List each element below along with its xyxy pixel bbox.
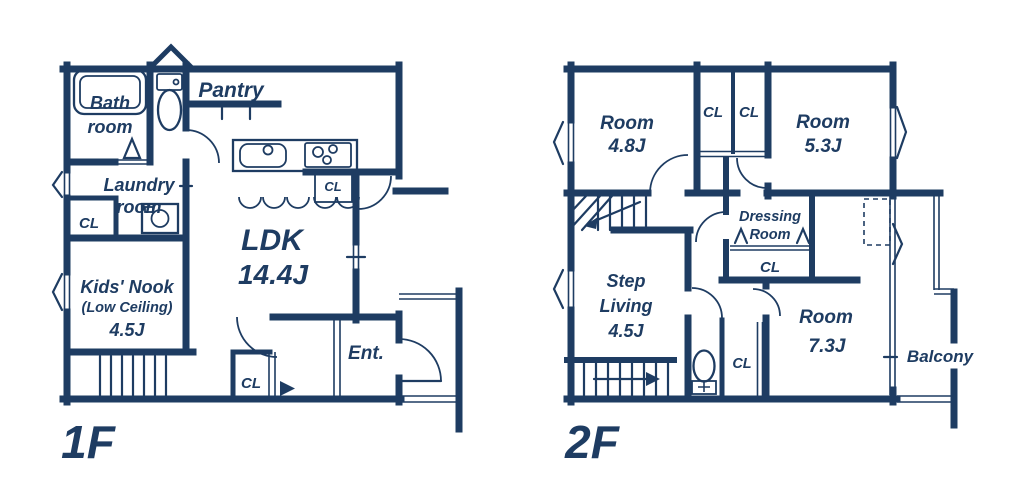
closet-sliding-doors <box>758 322 763 396</box>
stairs-direction-arrow-icon <box>646 372 660 386</box>
stove-icon <box>305 143 351 167</box>
closet-rod <box>730 246 810 250</box>
label-entrance: Ent. <box>348 343 384 364</box>
toilet-icon <box>157 74 182 130</box>
label-cl-b: CL <box>739 104 759 121</box>
stairs-2f-icon <box>571 196 646 230</box>
floor-1-labels: Bath room Pantry Laundry room CL CL LDK … <box>61 79 384 468</box>
label-ldk-name: LDK <box>241 224 305 257</box>
label-kids-nook-line1: Kids' Nook <box>80 277 174 297</box>
label-kids-nook-line3: 4.5J <box>108 320 145 340</box>
step-living-steps-icon <box>584 363 668 396</box>
label-kids-nook-line2: (Low Ceiling) <box>81 300 172 316</box>
label-dressing-line2: Room <box>749 227 790 243</box>
door-arc <box>753 289 780 316</box>
door-arc <box>399 339 441 381</box>
door-pivot-icon <box>280 381 295 396</box>
label-room53-name: Room <box>796 112 850 133</box>
hall-closet <box>269 320 340 399</box>
door-arc <box>186 130 219 163</box>
floorplan-canvas: Bath room Pantry Laundry room CL CL LDK … <box>0 0 1024 488</box>
label-step-living-line2: Living <box>600 296 653 316</box>
hanger-icon <box>735 229 747 243</box>
door-arc <box>358 176 391 209</box>
label-laundry-cl: CL <box>79 215 99 232</box>
stairs-1f-icon <box>100 356 166 396</box>
floor-1-title: 1F <box>61 416 117 468</box>
door-arc <box>650 155 688 193</box>
label-room48-size: 4.8J <box>608 136 646 157</box>
toilet-icon-2f <box>692 351 716 395</box>
label-room53-size: 5.3J <box>805 136 842 157</box>
label-step-living-line1: Step <box>606 271 645 291</box>
label-laundry-line2: room <box>117 197 162 217</box>
counter-dashed-icon <box>864 199 890 245</box>
label-room73-size: 7.3J <box>809 336 846 357</box>
label-ldk-size: 14.4J <box>238 259 309 290</box>
floor-1-plan: Bath room Pantry Laundry room CL CL LDK … <box>53 47 459 468</box>
label-pantry: Pantry <box>198 79 265 102</box>
label-wc-cl: CL <box>732 356 751 372</box>
floorplan-page: Bath room Pantry Laundry room CL CL LDK … <box>0 0 1024 488</box>
door-arc <box>696 212 726 242</box>
label-bathroom-line2: room <box>88 117 133 137</box>
label-room73-name: Room <box>799 307 853 328</box>
door-arc <box>692 288 722 318</box>
entrance-step-line <box>334 320 340 399</box>
label-room48-name: Room <box>600 113 654 134</box>
label-bathroom-line1: Bath <box>90 93 130 113</box>
kitchen-sink-icon <box>240 144 286 167</box>
sliding-door-icon <box>115 160 150 164</box>
label-balcony: Balcony <box>907 347 975 366</box>
window-icon <box>53 172 62 197</box>
door-arc <box>737 158 767 188</box>
label-step-living-line3: 4.5J <box>607 321 644 341</box>
label-dressing-line1: Dressing <box>739 209 801 225</box>
window-icon <box>554 122 563 164</box>
label-dressing-cl: CL <box>760 259 780 276</box>
window-icon <box>897 107 906 158</box>
hanger-icon <box>797 229 809 243</box>
porch <box>399 294 459 402</box>
label-hall-cl: CL <box>241 375 261 392</box>
bay-window-icon <box>152 47 190 66</box>
window-icon <box>53 274 62 310</box>
floor-2-title: 2F <box>564 416 621 468</box>
label-laundry-line1: Laundry <box>103 175 175 195</box>
floor-2-plan: Room 4.8J CL CL Room 5.3J Dressing Room … <box>554 65 975 468</box>
window-icon <box>554 270 563 308</box>
sliding-door-marker-icon <box>124 139 140 158</box>
label-kitchen-cl: CL <box>324 179 341 194</box>
label-cl-a: CL <box>703 104 723 121</box>
